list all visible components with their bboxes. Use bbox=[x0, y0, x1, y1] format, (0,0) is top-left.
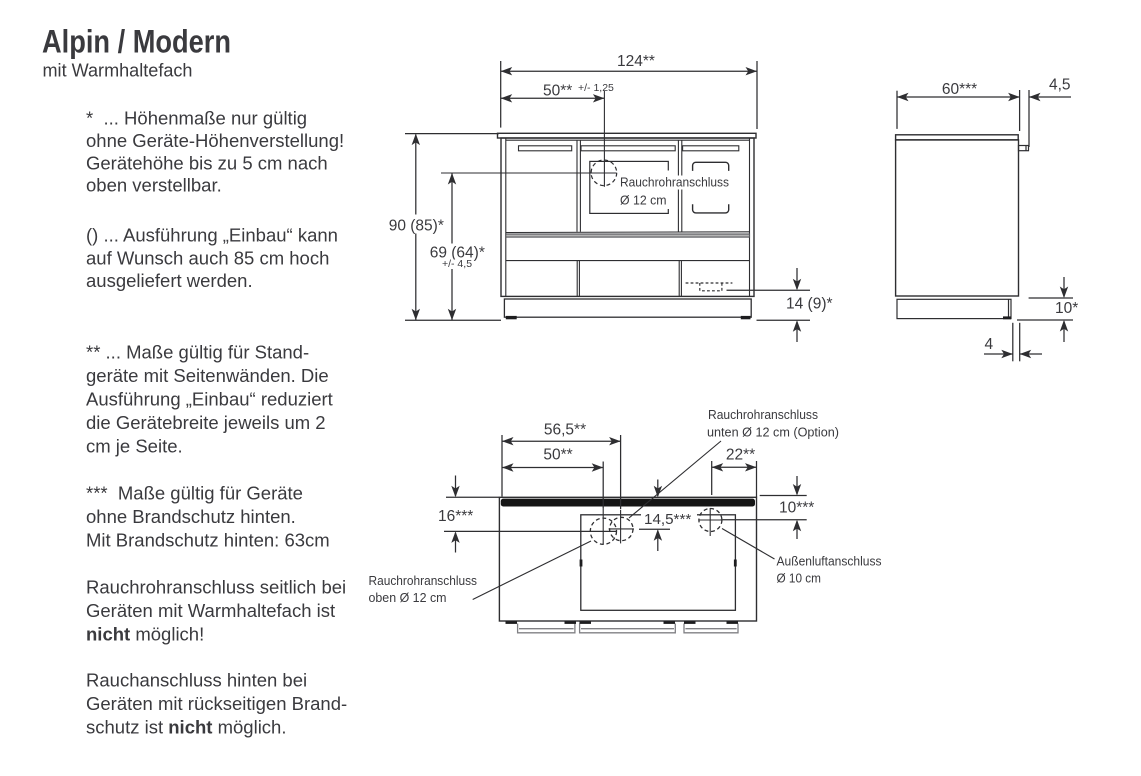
svg-text:Rauchrohranschluss seitlich be: Rauchrohranschluss seitlich bei bbox=[86, 576, 346, 597]
svg-text:+/- 1,25: +/- 1,25 bbox=[578, 82, 614, 94]
svg-text:schutz ist nicht möglich.: schutz ist nicht möglich. bbox=[86, 717, 286, 738]
svg-text:Ø 12 cm: Ø 12 cm bbox=[620, 193, 667, 208]
svg-text:90 (85)*: 90 (85)* bbox=[389, 218, 444, 235]
svg-text:*** Maße gültig für Geräte: *** Maße gültig für Geräte bbox=[86, 482, 303, 503]
svg-text:Rauchrohranschluss: Rauchrohranschluss bbox=[620, 175, 729, 190]
svg-text:ohne Brandschutz hinten.: ohne Brandschutz hinten. bbox=[86, 506, 296, 527]
svg-text:14,5***: 14,5*** bbox=[644, 511, 691, 528]
svg-text:* ... Höhenmaße nur gültig: * ... Höhenmaße nur gültig bbox=[86, 108, 307, 129]
svg-text:Rauchrohranschluss: Rauchrohranschluss bbox=[708, 407, 818, 422]
svg-text:die Gerätebreite jeweils um 2: die Gerätebreite jeweils um 2 bbox=[86, 412, 326, 433]
svg-text:ohne Geräte-Höhenverstellung!: ohne Geräte-Höhenverstellung! bbox=[86, 130, 344, 151]
svg-text:22**: 22** bbox=[726, 447, 755, 464]
svg-text:16***: 16*** bbox=[438, 508, 473, 525]
svg-text:mit Warmhaltefach: mit Warmhaltefach bbox=[43, 60, 193, 81]
svg-text:Rauchrohranschluss: Rauchrohranschluss bbox=[369, 573, 478, 588]
svg-text:124**: 124** bbox=[617, 53, 655, 70]
svg-text:Ø 10 cm: Ø 10 cm bbox=[777, 571, 822, 586]
svg-text:50**: 50** bbox=[543, 447, 572, 464]
svg-text:10***: 10*** bbox=[779, 500, 814, 517]
svg-text:Geräten mit rückseitigen Brand: Geräten mit rückseitigen Brand- bbox=[86, 693, 347, 714]
svg-text:Mit Brandschutz hinten: 63cm: Mit Brandschutz hinten: 63cm bbox=[86, 529, 330, 550]
svg-text:+/- 4,5: +/- 4,5 bbox=[442, 258, 472, 270]
svg-text:geräte mit Seitenwänden. Die: geräte mit Seitenwänden. Die bbox=[86, 365, 329, 386]
svg-text:4: 4 bbox=[985, 336, 994, 353]
svg-text:Ausführung „Einbau“ reduziert: Ausführung „Einbau“ reduziert bbox=[86, 388, 333, 409]
svg-text:() ... Ausführung „Einbau“ kan: () ... Ausführung „Einbau“ kann bbox=[86, 225, 338, 246]
svg-text:cm je Seite.: cm je Seite. bbox=[86, 435, 183, 456]
svg-text:oben verstellbar.: oben verstellbar. bbox=[86, 175, 222, 196]
svg-text:oben Ø 12 cm: oben Ø 12 cm bbox=[369, 590, 447, 605]
svg-text:56,5**: 56,5** bbox=[544, 422, 586, 439]
svg-text:** ... Maße gültig für Stand-: ** ... Maße gültig für Stand- bbox=[86, 341, 309, 362]
svg-text:Außenluftanschluss: Außenluftanschluss bbox=[777, 554, 882, 569]
svg-text:4,5: 4,5 bbox=[1049, 77, 1071, 94]
svg-text:Alpin / Modern: Alpin / Modern bbox=[42, 24, 231, 60]
svg-text:ausgeliefert werden.: ausgeliefert werden. bbox=[86, 270, 253, 291]
svg-text:nicht möglich!: nicht möglich! bbox=[86, 623, 204, 644]
svg-text:Rauchanschluss hinten bei: Rauchanschluss hinten bei bbox=[86, 670, 307, 691]
svg-text:unten Ø 12 cm (Option): unten Ø 12 cm (Option) bbox=[707, 425, 839, 440]
svg-text:60***: 60*** bbox=[942, 81, 977, 98]
svg-text:50**: 50** bbox=[543, 83, 572, 100]
svg-text:auf Wunsch auch 85 cm hoch: auf Wunsch auch 85 cm hoch bbox=[86, 247, 329, 268]
svg-text:14 (9)*: 14 (9)* bbox=[786, 296, 833, 313]
svg-text:Geräten mit Warmhaltefach ist: Geräten mit Warmhaltefach ist bbox=[86, 600, 335, 621]
svg-text:10*: 10* bbox=[1055, 300, 1078, 317]
svg-text:Gerätehöhe bis zu 5 cm nach: Gerätehöhe bis zu 5 cm nach bbox=[86, 152, 328, 173]
